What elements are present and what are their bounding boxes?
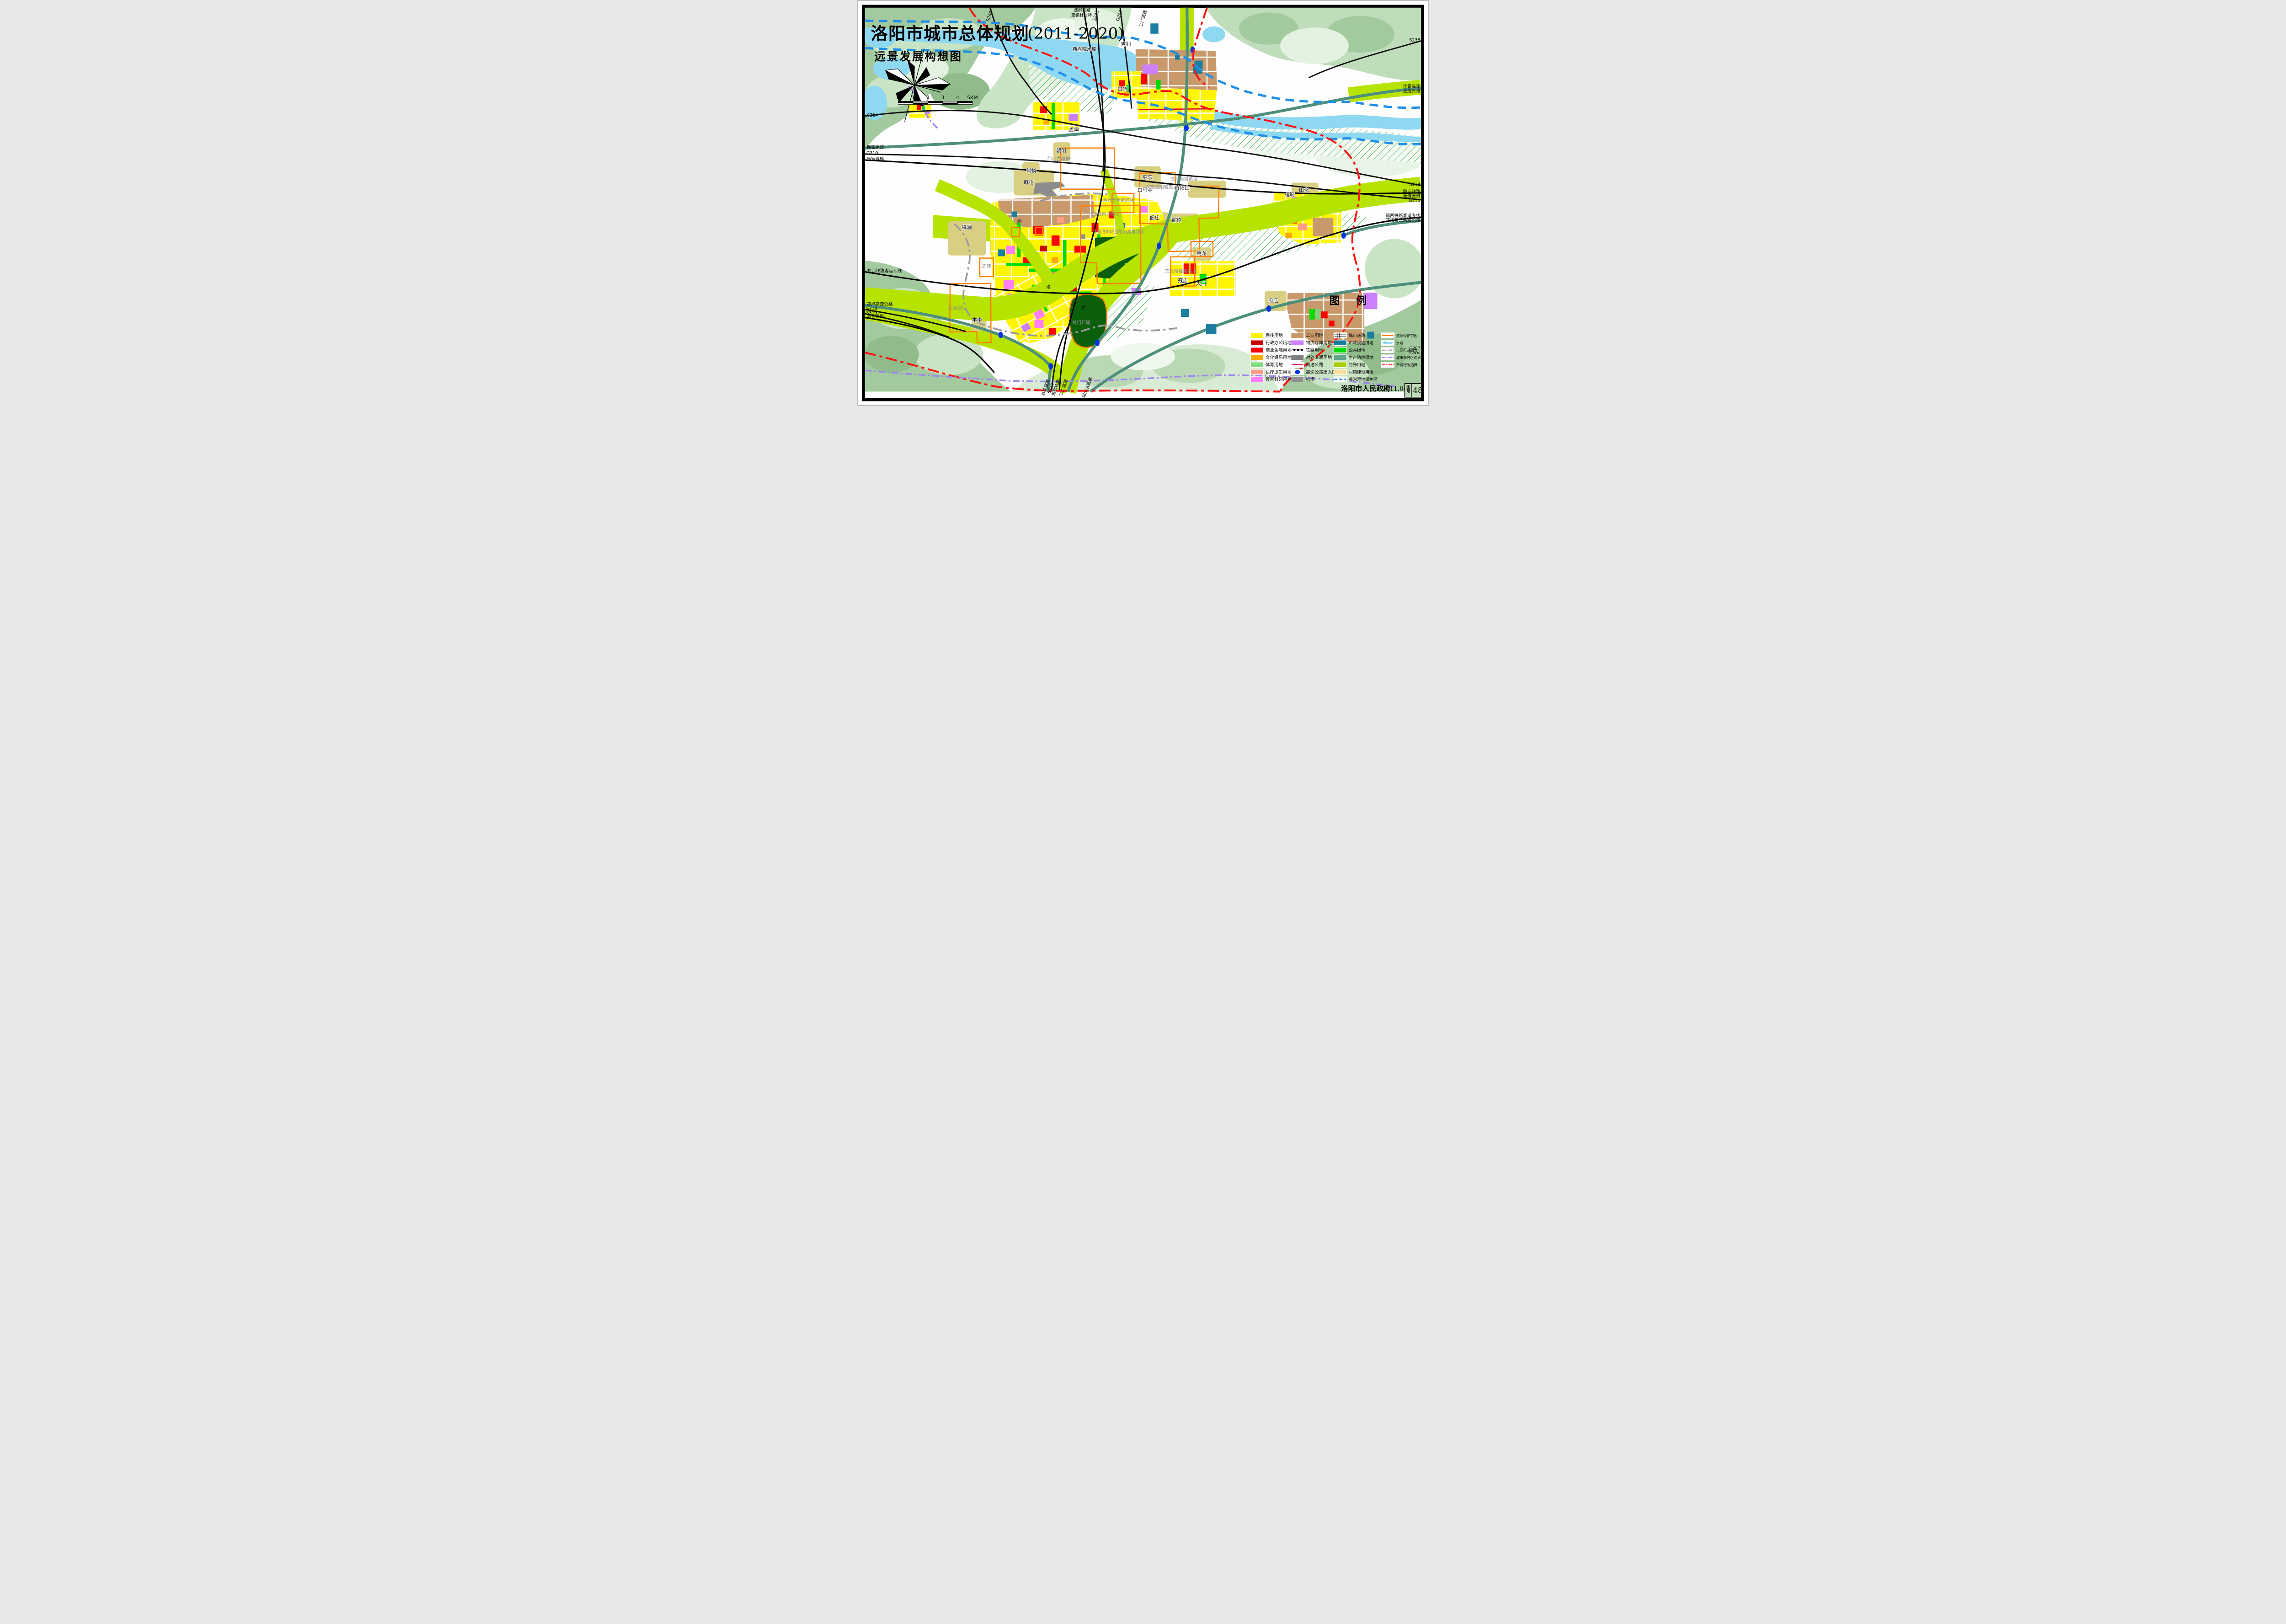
legend-item: 文化娱乐用地 — [1251, 355, 1292, 360]
map-label: S314 — [867, 113, 878, 118]
map-label: 至海安 — [1408, 350, 1420, 355]
legend-label: 工业用地 — [1306, 333, 1324, 338]
legend-label: 市域行政边界 — [1396, 363, 1418, 367]
legend-label: 文化娱乐用地 — [1266, 355, 1292, 360]
legend-label: 教育科研用地 — [1266, 377, 1292, 382]
legend-item: 物流仓储用地 — [1291, 340, 1332, 346]
legend-label: 对外交通用地 — [1306, 355, 1332, 360]
legend-item: 行政办公用地 — [1251, 340, 1292, 346]
map-label: 翟镇 — [1171, 217, 1181, 223]
legend-item: 村镇建设用地 — [1334, 369, 1374, 375]
sheet-label: 图号 — [1406, 385, 1410, 393]
map-label: 丰李 — [972, 316, 982, 323]
legend-item: 铁路用地 — [1291, 347, 1324, 353]
map-label: 陇海铁路 — [1403, 189, 1421, 195]
map-label: 连霍高速 — [867, 144, 885, 150]
map-label: 西苑遗址 — [948, 305, 967, 311]
legend-label: 机场 — [1306, 377, 1314, 382]
legend-item: 城市道路 — [1334, 333, 1366, 338]
legend-label: 水域 — [1396, 341, 1404, 345]
map-label: 连霍高速 — [1403, 84, 1421, 90]
map-label: 陇海铁路 — [867, 157, 885, 162]
legend-label: 特殊用地 — [1349, 362, 1365, 368]
legend-item: 特殊用地 — [1334, 362, 1366, 368]
map-label: 白鹤 — [1117, 85, 1127, 92]
legend-item: 居住用地 — [1251, 333, 1283, 338]
legend-label: 行政办公用地 — [1266, 340, 1292, 346]
scale-tick: 3 — [941, 95, 945, 101]
map-label: 高龙 — [1196, 250, 1207, 256]
map-label: 常袋 — [1026, 167, 1036, 174]
map-label: 偃师商城遗址 — [1170, 176, 1198, 182]
map-label: 大口 — [1196, 280, 1206, 287]
map-label: 郑洛第三高速公路 — [1385, 218, 1421, 223]
legend-label: 黄河湿地保护区 — [1349, 377, 1378, 382]
legend-item: 高速公路出入口 — [1291, 369, 1336, 375]
map-label: 东汉陵墓南兆域 — [1165, 268, 1197, 274]
legend-item: 机场 — [1291, 377, 1315, 382]
legend-label: 高速公路出入口 — [1306, 369, 1336, 375]
legend-label: 物流仓储用地 — [1306, 340, 1332, 346]
legend-label: 城市规划区边界 — [1396, 355, 1421, 360]
legend-label: 市政设施用地 — [1349, 340, 1373, 346]
scale-tick: 2 — [926, 95, 929, 101]
map-label: G207 — [1409, 347, 1420, 351]
legend-item: 医疗卫生用地 — [1251, 369, 1292, 375]
map-label: 至连云港 — [1403, 88, 1421, 94]
legend-label: 生产防护绿地 — [1349, 355, 1373, 360]
legend-label: 医疗卫生用地 — [1266, 369, 1292, 375]
map-label: 邙山古墓群 — [1047, 156, 1070, 162]
map-label: 郑西铁路客运专线 — [867, 268, 903, 274]
planning-map-svg: 图 例 居住用地行政办公用地商业金融用地文化娱乐用地体育用地医疗卫生用地教育科研… — [857, 0, 1429, 406]
scale-tick: 4 — [956, 95, 959, 101]
legend-label: 村镇建设用地 — [1349, 369, 1373, 375]
map-label: 伊 — [1082, 305, 1086, 310]
legend-item: 高速公路 — [1291, 362, 1324, 368]
publish-date: 2011.04 — [1382, 385, 1408, 393]
legend-label: 遗址保护范围 — [1396, 333, 1418, 338]
map-label: 隋唐洛阳城遗址 — [1089, 211, 1120, 217]
legend-label: 高速公路 — [1306, 362, 1324, 368]
map-title-years: (2011-2020) — [1028, 25, 1124, 43]
map-label: 洛宜铁路 — [867, 314, 885, 320]
map-label: 府店 — [1268, 297, 1278, 304]
map-label: 焦柳铁路 — [1074, 7, 1090, 13]
legend-item: 教育科研用地 — [1251, 377, 1292, 382]
legend-item: 体育用地 — [1251, 362, 1283, 368]
map-label: S314 — [1409, 182, 1420, 187]
scale-end-label: 5KM — [967, 95, 978, 101]
map-label: 至连云港 — [1403, 193, 1421, 199]
legend-title: 图 例 — [1330, 295, 1373, 307]
map-sheet: 图 例 居住用地行政办公用地商业金融用地文化娱乐用地体育用地医疗卫生用地教育科研… — [857, 0, 1429, 406]
legend-item: 生产防护绿地 — [1334, 355, 1374, 360]
map-label: 汉魏洛阳城遗址 — [1146, 184, 1178, 190]
legend-label: 居住用地 — [1266, 333, 1283, 338]
map-subtitle: 远景发展构想图 — [875, 50, 963, 63]
legend-label: 铁路用地 — [1306, 347, 1324, 353]
legend-label: 商业金融用地 — [1266, 347, 1292, 353]
legend-item: 公共绿地 — [1334, 347, 1366, 353]
map-label: 偃师 — [1285, 192, 1295, 198]
map-label: 朝阳 — [1056, 148, 1066, 154]
map-label: 寇店 — [1178, 278, 1188, 284]
map-label: 麻屯 — [1024, 179, 1034, 186]
map-label: 山化 — [1299, 187, 1309, 193]
map-label: 洛 — [1046, 284, 1051, 290]
scale-tick: 1 — [912, 95, 915, 101]
map-label: 郑西铁路客运专线 — [1385, 213, 1421, 219]
map-label: 佃庄 — [1150, 214, 1160, 221]
legend-label: 公共绿地 — [1349, 347, 1365, 353]
map-label: 郑卢高速公路 — [867, 302, 893, 307]
legend-item: 黄河湿地保护区 — [1334, 377, 1378, 382]
legend-item: 市政设施用地 — [1334, 340, 1374, 346]
map-label: 至锡林浩特 — [1071, 12, 1092, 18]
legend-item: 对外交通用地 — [1291, 355, 1332, 360]
map-label: 隋代仓窖群遗址 — [1103, 198, 1134, 203]
map-label: 涧 — [1017, 219, 1022, 224]
legend-item: 商业金融用地 — [1251, 347, 1292, 353]
legend-label: 体育用地 — [1266, 362, 1283, 368]
scale-tick: 0 — [897, 95, 900, 101]
legend-label: 城市道路 — [1349, 333, 1365, 338]
map-label: 平乐 — [1143, 175, 1153, 181]
map-label: 龙门石窟 — [1072, 320, 1090, 326]
map-label: 磁涧 — [962, 224, 972, 230]
map-label: 孟津 — [1069, 126, 1079, 132]
map-title: 洛阳市城市总体规划 — [871, 23, 1030, 43]
map-label: 隋唐洛阳城遗址洛南里坊区 — [1092, 229, 1145, 235]
map-label: 西霞院水库 — [1073, 46, 1097, 52]
legend-item: 工业用地 — [1291, 333, 1324, 338]
map-label: 周陵 — [982, 264, 991, 269]
map-label: G310 — [866, 151, 878, 156]
map-label: S238 — [1409, 38, 1420, 43]
map-label: G310 — [1409, 198, 1421, 203]
